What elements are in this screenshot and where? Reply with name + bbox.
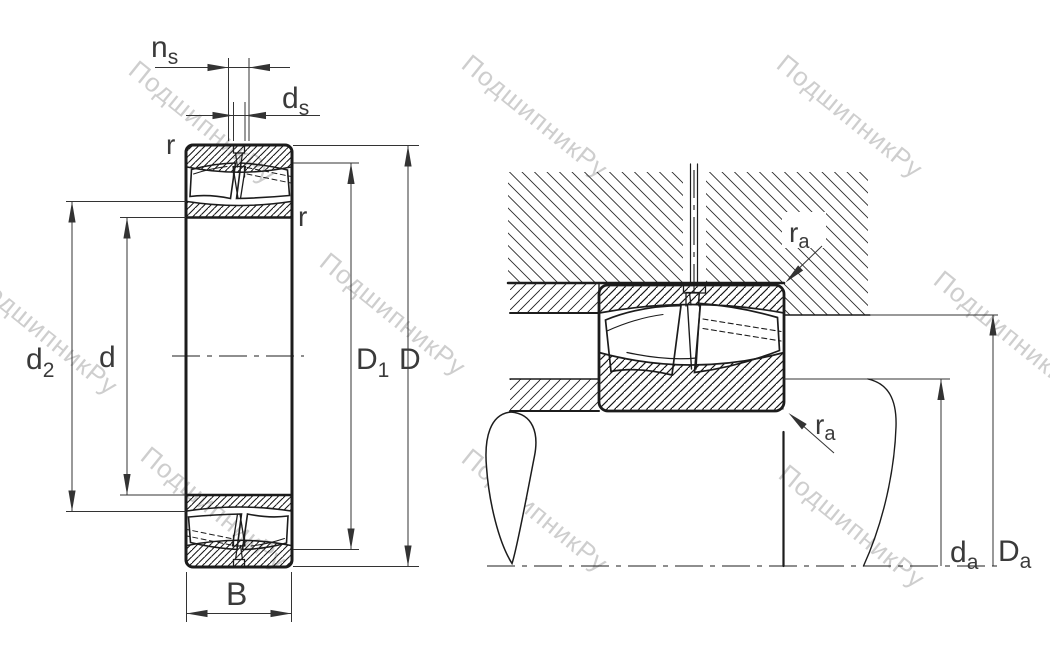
label-ra-shaft: ra: [815, 409, 836, 445]
callout-ra-shaft: ra: [786, 409, 836, 453]
watermark-layer: ПодшипникРу ПодшипникРу ПодшипникРу Подш…: [0, 48, 1050, 594]
mounted-bearing-view: ra ra da Da: [486, 164, 1032, 574]
dim-B: B: [187, 572, 292, 622]
bearing-bottom-section: [186, 495, 292, 567]
watermark-text: ПодшипникРу: [773, 458, 931, 594]
label-d: d: [99, 341, 116, 374]
watermark-text: ПодшипникРу: [0, 265, 124, 401]
watermark-text: ПодшипникРу: [314, 246, 472, 382]
shaft-abutment-hatch: [510, 379, 599, 411]
watermark-text: ПодшипникРу: [456, 442, 614, 578]
label-D1: D1: [356, 343, 389, 382]
watermark-text: ПодшипникРу: [928, 264, 1050, 400]
shaft-shoulder-section: [486, 412, 536, 564]
mounted-guide-ring-edge: [627, 353, 697, 359]
label-ds: ds: [282, 82, 309, 120]
label-Da: Da: [998, 535, 1032, 573]
watermark-text: ПодшипникРу: [771, 48, 929, 184]
mounted-hidden-groove-dashes: [703, 319, 781, 341]
label-da: da: [950, 536, 979, 574]
bearing-top-section: [186, 146, 292, 218]
watermark-text: ПодшипникРу: [456, 48, 614, 184]
label-r-inner: r: [298, 201, 307, 232]
label-D: D: [399, 343, 421, 376]
housing-abutment-hatch: [510, 283, 599, 313]
mounted-inner-ring-hatch: [601, 353, 784, 410]
bearing-technical-drawing: ПодшипникРу ПодшипникРу ПодшипникРу Подш…: [0, 0, 1050, 650]
outer-ring-hatch: [187, 146, 291, 172]
label-ns: ns: [151, 31, 178, 69]
mounted-cage-guide: [688, 305, 701, 369]
drawing-canvas: ПодшипникРу ПодшипникРу ПодшипникРу Подш…: [0, 0, 1050, 650]
label-r-outer: r: [166, 129, 175, 160]
dim-D1: D1: [293, 163, 389, 550]
dim-da: da: [937, 379, 978, 574]
label-B: B: [226, 576, 247, 612]
